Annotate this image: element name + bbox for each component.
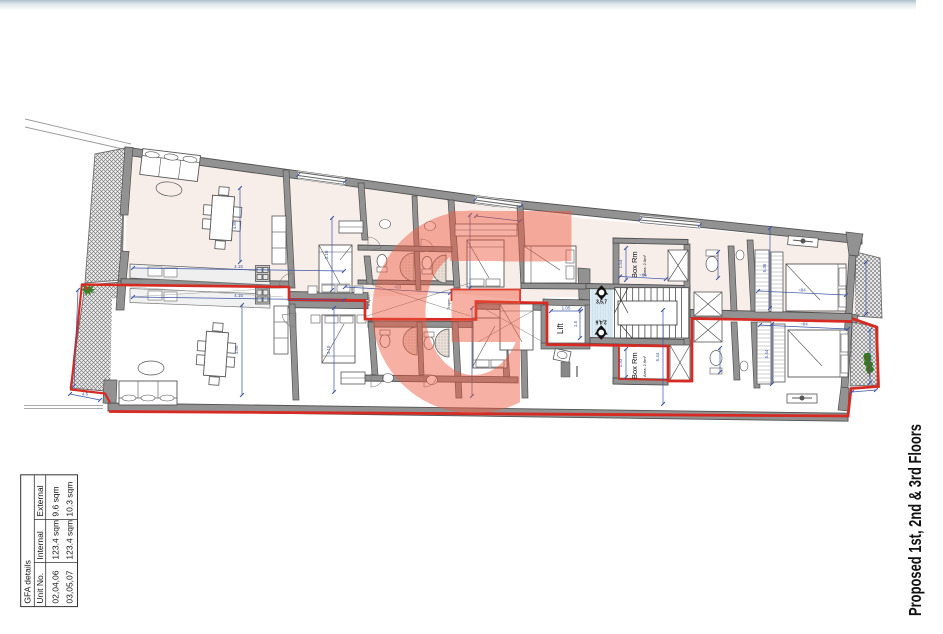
svg-text:1.53: 1.53 [618, 259, 623, 268]
svg-text:Unit No.: Unit No. [35, 573, 45, 604]
svg-text:1.05: 1.05 [562, 306, 571, 311]
svg-text:GFA details: GFA details [23, 560, 33, 603]
svg-text:4.80: 4.80 [234, 345, 239, 354]
svg-text:4.15: 4.15 [234, 293, 243, 298]
svg-text:3,5,7: 3,5,7 [596, 300, 607, 306]
svg-text:3.10: 3.10 [326, 345, 331, 354]
svg-text:1.33: 1.33 [618, 358, 623, 367]
svg-text:Proposed 1st, 2nd & 3rd Floors: Proposed 1st, 2nd & 3rd Floors [905, 424, 925, 616]
svg-text:Lift: Lift [556, 323, 565, 334]
svg-text:1.5: 1.5 [573, 320, 578, 327]
svg-text:5.36: 5.36 [762, 263, 767, 272]
svg-text:123.4 sqm: 123.4 sqm [51, 520, 61, 560]
svg-text:5.44: 5.44 [655, 352, 660, 361]
svg-text:123.4 sqm: 123.4 sqm [65, 520, 75, 560]
svg-text:2,4,6: 2,4,6 [595, 319, 606, 325]
svg-text:External: External [35, 485, 45, 516]
svg-text:Trapm: Trapm [446, 298, 451, 310]
svg-text:9.6 sqm: 9.6 sqm [51, 486, 61, 516]
svg-text:10.3 sqm: 10.3 sqm [65, 482, 75, 517]
svg-text:03,05,07: 03,05,07 [65, 570, 75, 603]
svg-text:~84: ~84 [800, 322, 808, 327]
svg-text:Area: 2.6m²: Area: 2.6m² [642, 355, 647, 377]
svg-text:3.10: 3.10 [324, 250, 329, 259]
svg-text:~66: ~66 [639, 272, 647, 277]
svg-text:~84: ~84 [798, 288, 806, 293]
svg-text:02,04,06: 02,04,06 [51, 570, 61, 603]
svg-text:Box Rm: Box Rm [630, 251, 639, 278]
svg-text:Trapm: Trapm [366, 295, 371, 307]
svg-text:Internal: Internal [35, 531, 45, 559]
svg-text:Box Rm: Box Rm [630, 352, 639, 379]
svg-text:4.5: 4.5 [82, 392, 89, 397]
svg-text:4.15: 4.15 [234, 264, 243, 269]
svg-text:4.80: 4.80 [232, 220, 237, 229]
svg-text:5.44: 5.44 [764, 349, 769, 358]
